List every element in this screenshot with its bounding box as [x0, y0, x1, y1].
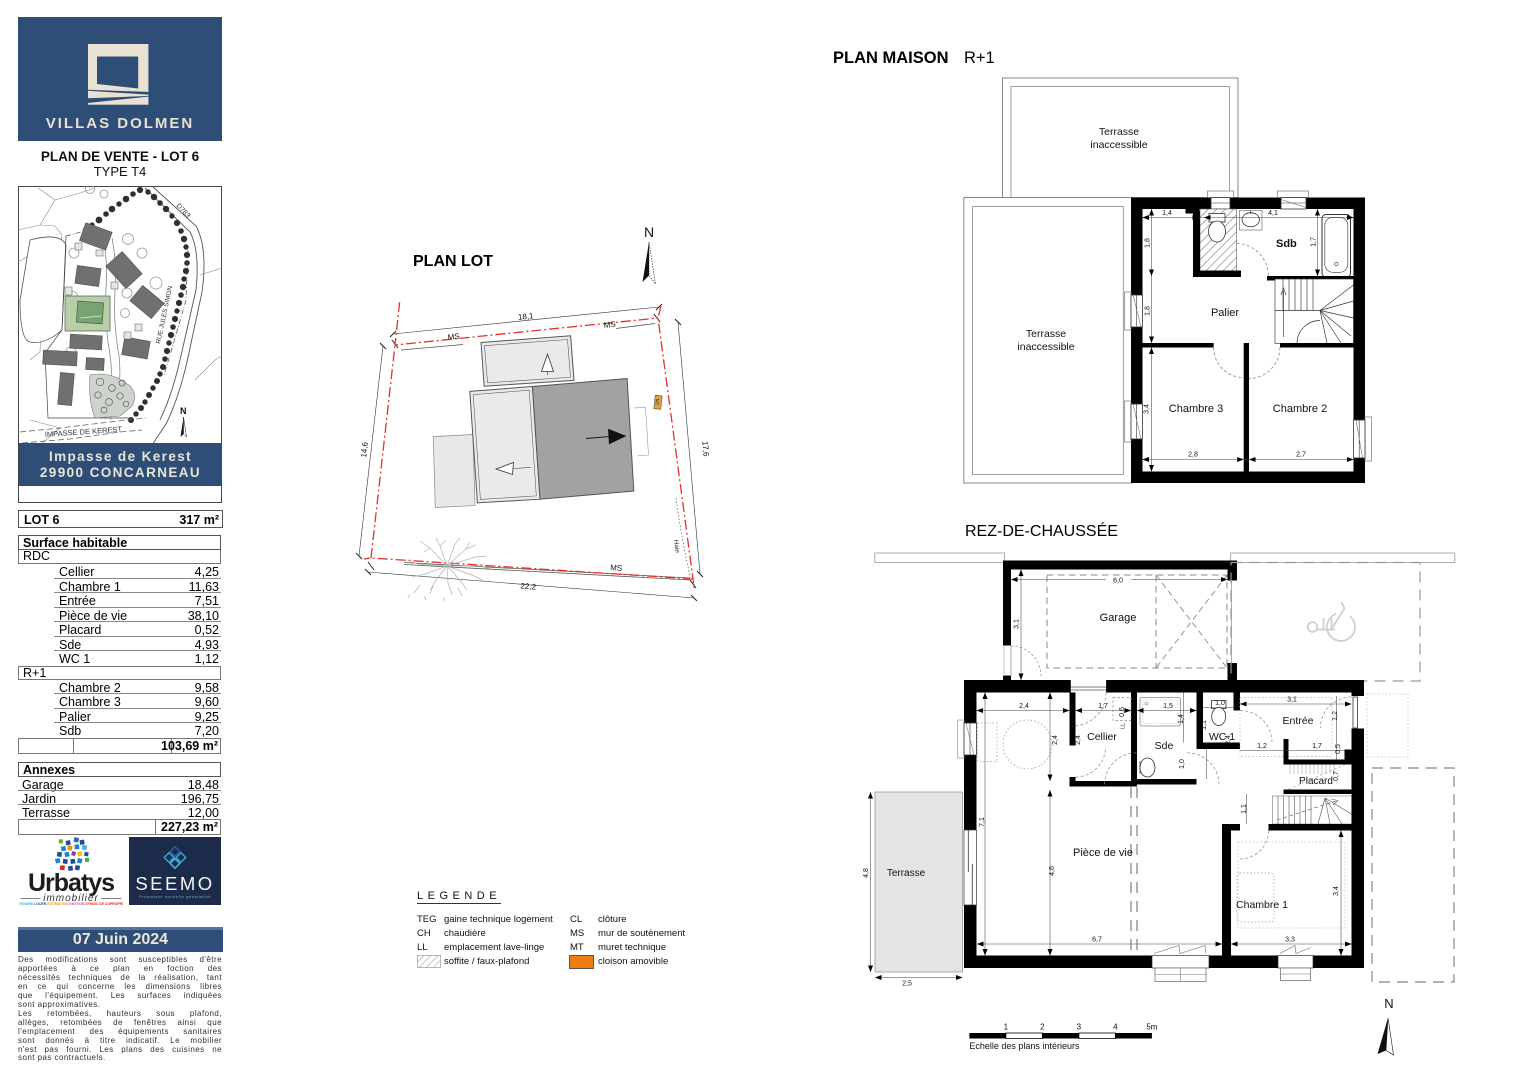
svg-text:4,1: 4,1: [1268, 210, 1278, 217]
svg-text:1,1: 1,1: [1241, 804, 1248, 814]
svg-text:Haie: Haie: [672, 539, 681, 554]
svg-text:MS: MS: [610, 563, 623, 573]
svg-text:0,6: 0,6: [1119, 707, 1126, 717]
svg-text:Placard: Placard: [1299, 776, 1333, 787]
svg-text:1,8: 1,8: [1145, 238, 1152, 248]
svg-text:Palier: Palier: [1211, 307, 1239, 319]
svg-text:Terrasse: Terrasse: [1099, 126, 1139, 138]
svg-text:2,7: 2,7: [1296, 452, 1306, 459]
svg-text:4,8: 4,8: [863, 868, 870, 878]
svg-text:5m: 5m: [1146, 1023, 1157, 1032]
svg-text:Sde: Sde: [1155, 740, 1174, 752]
svg-text:2,4: 2,4: [1225, 735, 1232, 745]
svg-text:1,8: 1,8: [1145, 306, 1152, 316]
svg-text:Echelle des plans intérieurs: Echelle des plans intérieurs: [969, 1041, 1080, 1051]
svg-text:3,4: 3,4: [1333, 886, 1340, 896]
svg-text:3,1: 3,1: [1287, 697, 1297, 704]
svg-text:SEEMO: SEEMO: [135, 873, 214, 894]
svg-text:4,6: 4,6: [1049, 866, 1056, 876]
svg-text:4: 4: [1113, 1023, 1118, 1032]
svg-text:VILLAS DOLMEN: VILLAS DOLMEN: [46, 115, 195, 132]
svg-text:3,1: 3,1: [1014, 619, 1021, 629]
svg-text:N: N: [644, 224, 654, 240]
svg-text:1,7: 1,7: [1312, 743, 1322, 750]
svg-text:3: 3: [1077, 1023, 1082, 1032]
svg-text:Chambre 1: Chambre 1: [1236, 899, 1288, 911]
svg-text:1,7: 1,7: [1311, 237, 1318, 247]
svg-text:MS: MS: [447, 332, 460, 342]
svg-text:17,6: 17,6: [700, 441, 710, 458]
svg-text:2,5: 2,5: [902, 981, 912, 988]
svg-text:6,7: 6,7: [1092, 937, 1102, 944]
svg-text:1,4: 1,4: [1162, 210, 1172, 217]
svg-text:1,2: 1,2: [1257, 743, 1267, 750]
svg-text:1,4: 1,4: [1178, 714, 1185, 724]
svg-text:1,2: 1,2: [1332, 711, 1339, 721]
svg-text:18,1: 18,1: [518, 311, 535, 322]
svg-text:Sdb: Sdb: [1276, 238, 1297, 250]
svg-text:LL: LL: [1121, 723, 1127, 729]
svg-text:0,5: 0,5: [1335, 744, 1342, 754]
svg-text:inaccessible: inaccessible: [1090, 139, 1147, 151]
svg-text:1,7: 1,7: [1098, 703, 1108, 710]
svg-text:22,2: 22,2: [520, 581, 537, 591]
svg-text:Chambre 2: Chambre 2: [1273, 403, 1327, 415]
svg-text:14,6: 14,6: [359, 441, 370, 458]
svg-text:2,4: 2,4: [1075, 735, 1082, 745]
svg-text:2: 2: [1040, 1023, 1045, 1032]
svg-text:2,4: 2,4: [1019, 703, 1029, 710]
svg-text:1,0: 1,0: [1179, 759, 1186, 769]
svg-text:Terrasse: Terrasse: [887, 868, 926, 879]
svg-text:2,4: 2,4: [1052, 735, 1059, 745]
svg-text:Pièce de vie: Pièce de vie: [1073, 847, 1133, 859]
svg-text:Entrée: Entrée: [1283, 715, 1314, 727]
svg-text:3,4: 3,4: [1144, 404, 1151, 414]
svg-text:0,7: 0,7: [1333, 771, 1340, 781]
svg-text:1,0: 1,0: [1215, 700, 1225, 707]
svg-text:6,0: 6,0: [1113, 578, 1123, 585]
svg-text:MS: MS: [603, 320, 616, 330]
svg-text:inaccessible: inaccessible: [1017, 341, 1074, 353]
svg-text:2,8: 2,8: [1188, 452, 1198, 459]
svg-text:Cellier: Cellier: [1087, 731, 1117, 743]
svg-text:Promoteur nouvelle génération: Promoteur nouvelle génération: [139, 894, 211, 899]
svg-text:N: N: [1384, 996, 1393, 1011]
svg-text:Garage: Garage: [1100, 612, 1137, 624]
svg-text:1: 1: [1004, 1023, 1009, 1032]
svg-text:Chambre 3: Chambre 3: [1169, 403, 1223, 415]
svg-text:3,3: 3,3: [1285, 937, 1295, 944]
svg-text:1,5: 1,5: [1163, 703, 1173, 710]
svg-text:1,1: 1,1: [1201, 720, 1208, 730]
svg-text:Terrasse: Terrasse: [1026, 328, 1066, 340]
svg-text:N: N: [180, 406, 187, 416]
svg-text:7,1: 7,1: [979, 817, 986, 827]
svg-text:MT: MT: [654, 398, 660, 405]
